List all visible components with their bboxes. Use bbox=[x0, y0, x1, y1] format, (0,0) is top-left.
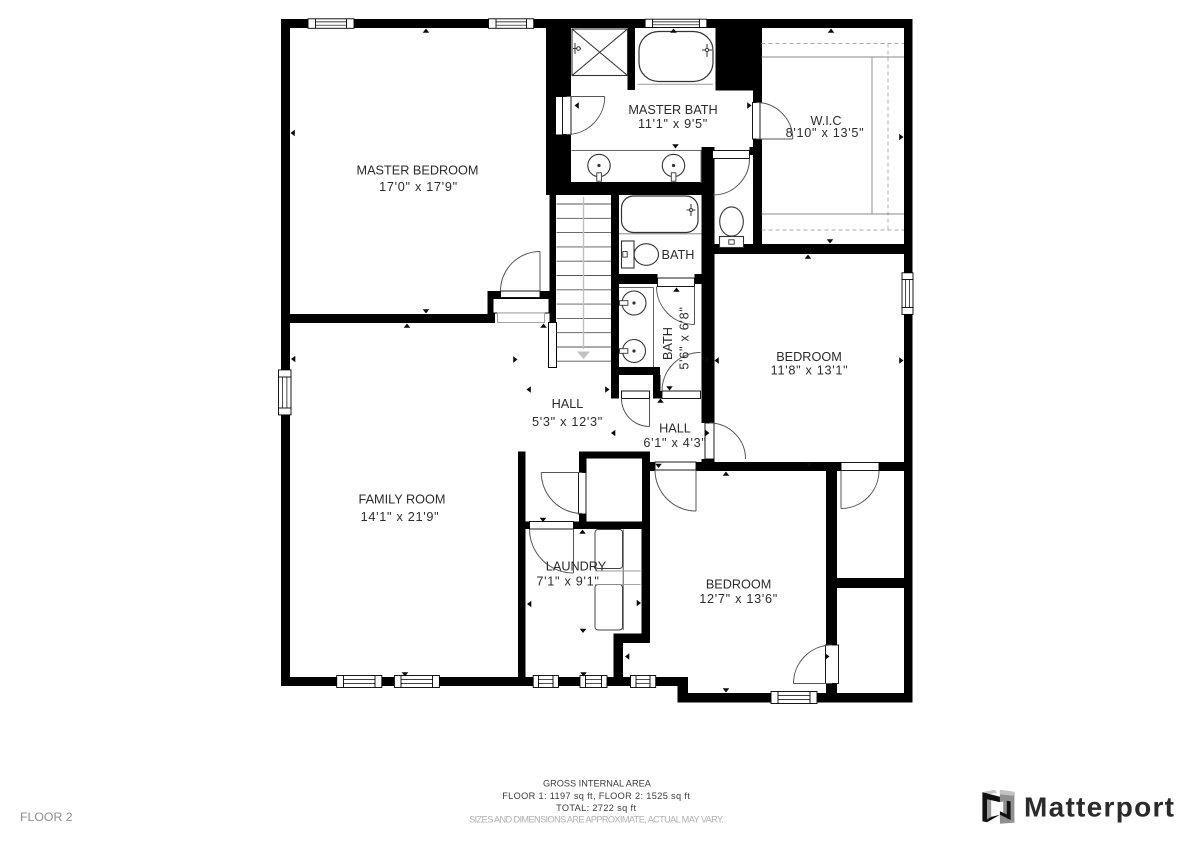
svg-text:17'0" x 17'9": 17'0" x 17'9" bbox=[379, 180, 458, 194]
svg-text:MASTER BATH: MASTER BATH bbox=[628, 103, 717, 117]
svg-text:11'8" x 13'1": 11'8" x 13'1" bbox=[771, 364, 849, 378]
svg-text:FLOOR 1: 1197 sq ft, FLOOR 2:: FLOOR 1: 1197 sq ft, FLOOR 2: 1525 sq ft bbox=[502, 791, 690, 801]
svg-text:GROSS INTERNAL AREA: GROSS INTERNAL AREA bbox=[543, 778, 652, 788]
svg-text:8'10" x 13'5": 8'10" x 13'5" bbox=[786, 126, 865, 140]
svg-text:SIZES AND DIMENSIONS ARE APPRO: SIZES AND DIMENSIONS ARE APPROXIMATE, AC… bbox=[469, 814, 723, 824]
svg-text:BEDROOM: BEDROOM bbox=[706, 577, 772, 591]
svg-text:HALL: HALL bbox=[659, 422, 691, 436]
svg-text:6'1" x 4'3": 6'1" x 4'3" bbox=[643, 436, 706, 450]
svg-text:Matterport: Matterport bbox=[1024, 792, 1175, 823]
svg-text:LAUNDRY: LAUNDRY bbox=[546, 560, 607, 574]
svg-text:TOTAL: 2722 sq ft: TOTAL: 2722 sq ft bbox=[556, 803, 636, 813]
svg-text:BEDROOM: BEDROOM bbox=[776, 350, 842, 364]
svg-text:BATH: BATH bbox=[662, 248, 695, 262]
svg-text:5'3" x 12'3": 5'3" x 12'3" bbox=[532, 415, 603, 429]
svg-text:11'1" x 9'5": 11'1" x 9'5" bbox=[638, 117, 708, 131]
svg-text:MASTER BEDROOM: MASTER BEDROOM bbox=[357, 164, 479, 178]
svg-text:FLOOR 2: FLOOR 2 bbox=[20, 810, 73, 824]
svg-text:7'1" x 9'1": 7'1" x 9'1" bbox=[536, 575, 599, 589]
svg-text:FAMILY ROOM: FAMILY ROOM bbox=[359, 493, 446, 507]
svg-text:HALL: HALL bbox=[552, 397, 584, 411]
svg-text:14'1" x 21'9": 14'1" x 21'9" bbox=[361, 510, 440, 524]
svg-text:BATH: BATH bbox=[661, 327, 675, 360]
svg-text:5'6" x 6'8": 5'6" x 6'8" bbox=[678, 306, 692, 369]
svg-text:12'7" x 13'6": 12'7" x 13'6" bbox=[699, 592, 778, 606]
